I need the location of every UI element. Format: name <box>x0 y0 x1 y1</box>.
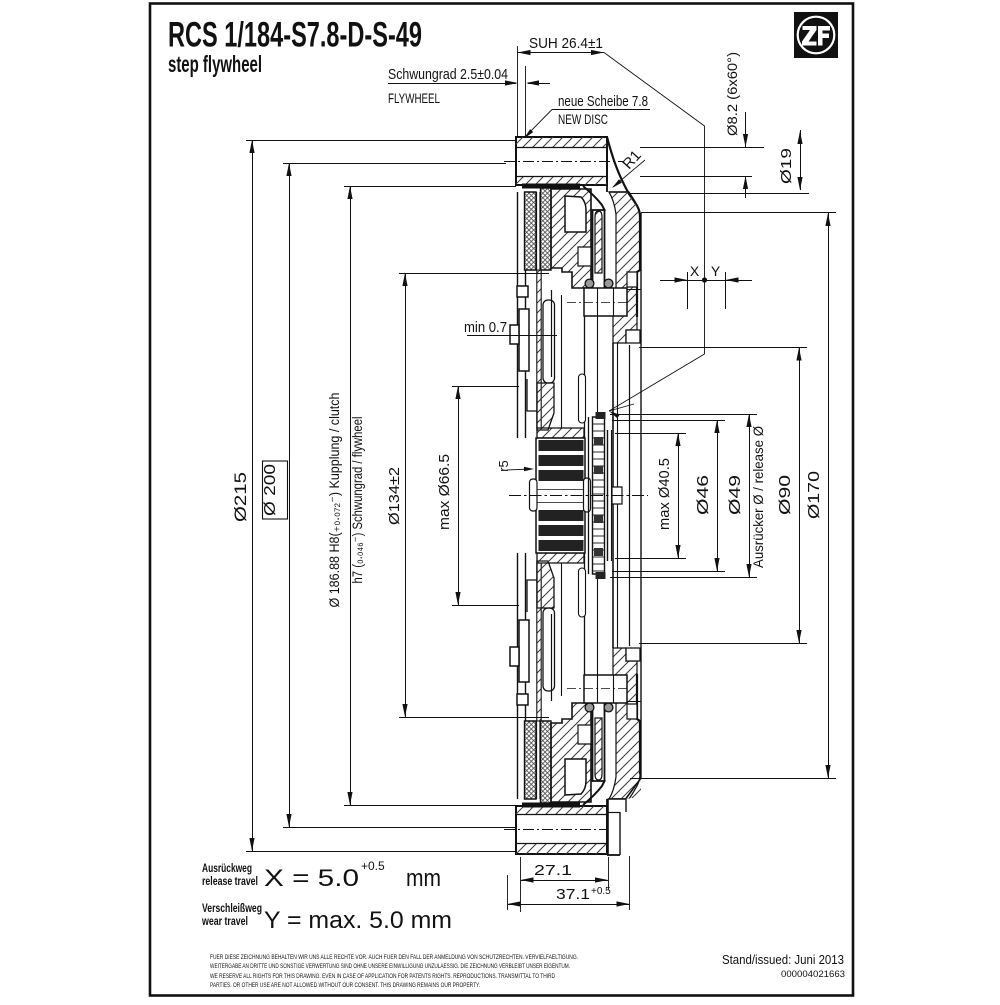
svg-text:max Ø66.5: max Ø66.5 <box>437 454 453 530</box>
svg-text:Ausrückweg: Ausrückweg <box>202 863 252 875</box>
svg-text:mm: mm <box>406 865 441 892</box>
svg-text:FUER DIESE ZEICHNUNG BEHALTEN: FUER DIESE ZEICHNUNG BEHALTEN WIR UNS AL… <box>210 954 578 961</box>
svg-text:FLYWHEEL: FLYWHEEL <box>388 90 440 106</box>
svg-text:step flywheel: step flywheel <box>168 51 262 77</box>
svg-text:wear travel: wear travel <box>201 916 248 928</box>
svg-text:SUH 26.4±1: SUH 26.4±1 <box>529 35 603 52</box>
svg-text:Ø46: Ø46 <box>695 475 712 515</box>
svg-text:000004021663: 000004021663 <box>781 969 845 980</box>
svg-text:Verschleißweg: Verschleißweg <box>202 903 262 915</box>
svg-text:release travel: release travel <box>202 876 258 888</box>
svg-text:Ø90: Ø90 <box>777 475 794 515</box>
svg-text:WE RESERVE ALL RIGHTS FOR THIS: WE RESERVE ALL RIGHTS FOR THIS DRAWING. … <box>210 973 555 980</box>
svg-text:37.1: 37.1 <box>556 886 590 903</box>
svg-text:Ø 200: Ø 200 <box>262 464 279 516</box>
svg-text:Stand/issued: Juni 2013: Stand/issued: Juni 2013 <box>722 953 844 967</box>
svg-text:Ø 186.88 H8(₊₀.₀₇₂⁻) Kupplung: Ø 186.88 H8(₊₀.₀₇₂⁻) Kupplung / clutch <box>327 393 342 608</box>
svg-text:neue Scheibe 7.8: neue Scheibe 7.8 <box>558 93 648 110</box>
svg-text:min 0.7: min 0.7 <box>464 320 507 336</box>
svg-text:Schwungrad 2.5±0.04: Schwungrad 2.5±0.04 <box>388 66 508 83</box>
svg-text:Ø49: Ø49 <box>727 475 744 515</box>
svg-text:Ø170: Ø170 <box>806 471 823 519</box>
svg-text:Y: Y <box>711 263 721 279</box>
svg-text:+0.5: +0.5 <box>361 859 385 873</box>
svg-text:X = 5.0: X = 5.0 <box>264 865 359 892</box>
svg-text:27.1: 27.1 <box>534 862 572 879</box>
svg-text:Ø8.2 (6x60°): Ø8.2 (6x60°) <box>724 52 740 136</box>
svg-text:NEW DISC: NEW DISC <box>558 111 608 127</box>
svg-text:+0.5: +0.5 <box>591 886 611 897</box>
svg-text:Y = max. 5.0 mm: Y = max. 5.0 mm <box>264 907 452 934</box>
svg-text:Ausrücker Ø / release Ø: Ausrücker Ø / release Ø <box>751 426 766 568</box>
svg-text:X: X <box>690 263 700 279</box>
svg-text:PARTIES. OR OTHER USE ARE NOT: PARTIES. OR OTHER USE ARE NOT ALLOWED WI… <box>210 982 480 989</box>
svg-text:WEITERGABE AN DRITTE UND SONST: WEITERGABE AN DRITTE UND SONSTIGE VERWER… <box>210 963 570 970</box>
svg-text:Ø19: Ø19 <box>779 148 795 184</box>
svg-text:Ø215: Ø215 <box>231 472 250 522</box>
svg-text:Ø134±2: Ø134±2 <box>386 467 403 525</box>
svg-text:h7 (₀.₀₄₆⁻) Schwungrad / flywh: h7 (₀.₀₄₆⁻) Schwungrad / flywheel <box>350 417 365 584</box>
svg-text:max Ø40.5: max Ø40.5 <box>657 458 673 530</box>
svg-text:RCS 1/184-S7.8-D-S-49: RCS 1/184-S7.8-D-S-49 <box>168 16 422 55</box>
